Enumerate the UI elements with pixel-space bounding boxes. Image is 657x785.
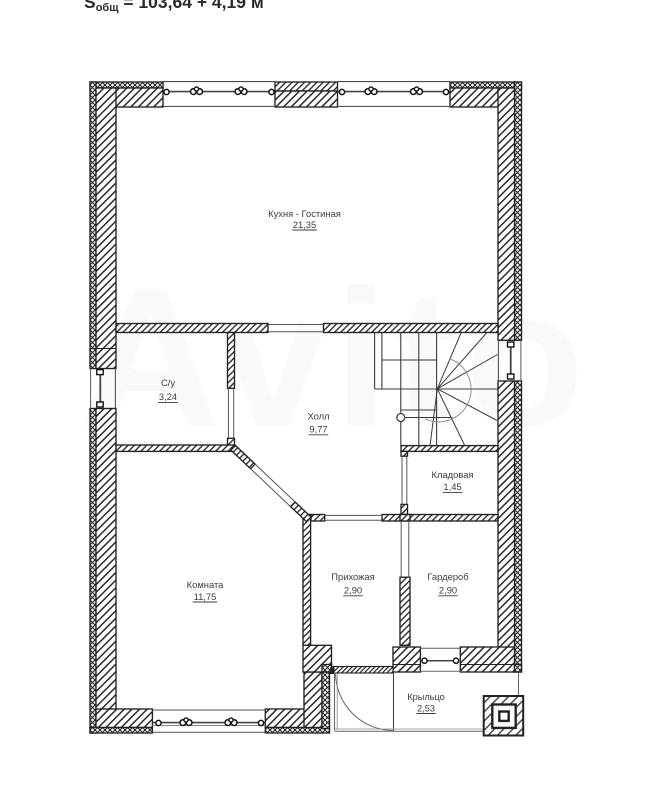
svg-text:Кухня - Гостиная: Кухня - Гостиная xyxy=(268,208,341,219)
svg-text:21,35: 21,35 xyxy=(293,219,316,230)
svg-text:2,53: 2,53 xyxy=(417,703,435,713)
svg-text:Холл: Холл xyxy=(307,411,329,422)
svg-text:9,77: 9,77 xyxy=(309,424,327,435)
svg-text:Комната: Комната xyxy=(187,579,224,590)
svg-text:11,75: 11,75 xyxy=(194,591,217,602)
svg-text:Кладовая: Кладовая xyxy=(432,469,474,480)
svg-text:2,90: 2,90 xyxy=(439,585,457,596)
svg-text:Гардероб: Гардероб xyxy=(427,571,468,582)
svg-text:С/у: С/у xyxy=(161,377,175,388)
svg-text:Sобщ = 103,64 + 4,19 м: Sобщ = 103,64 + 4,19 м xyxy=(84,0,264,14)
svg-text:Прихожая: Прихожая xyxy=(331,571,374,582)
svg-text:3,24: 3,24 xyxy=(159,391,177,402)
svg-text:1,45: 1,45 xyxy=(443,481,461,492)
svg-text:Крыльцо: Крыльцо xyxy=(407,692,444,702)
svg-text:2,90: 2,90 xyxy=(344,585,362,596)
